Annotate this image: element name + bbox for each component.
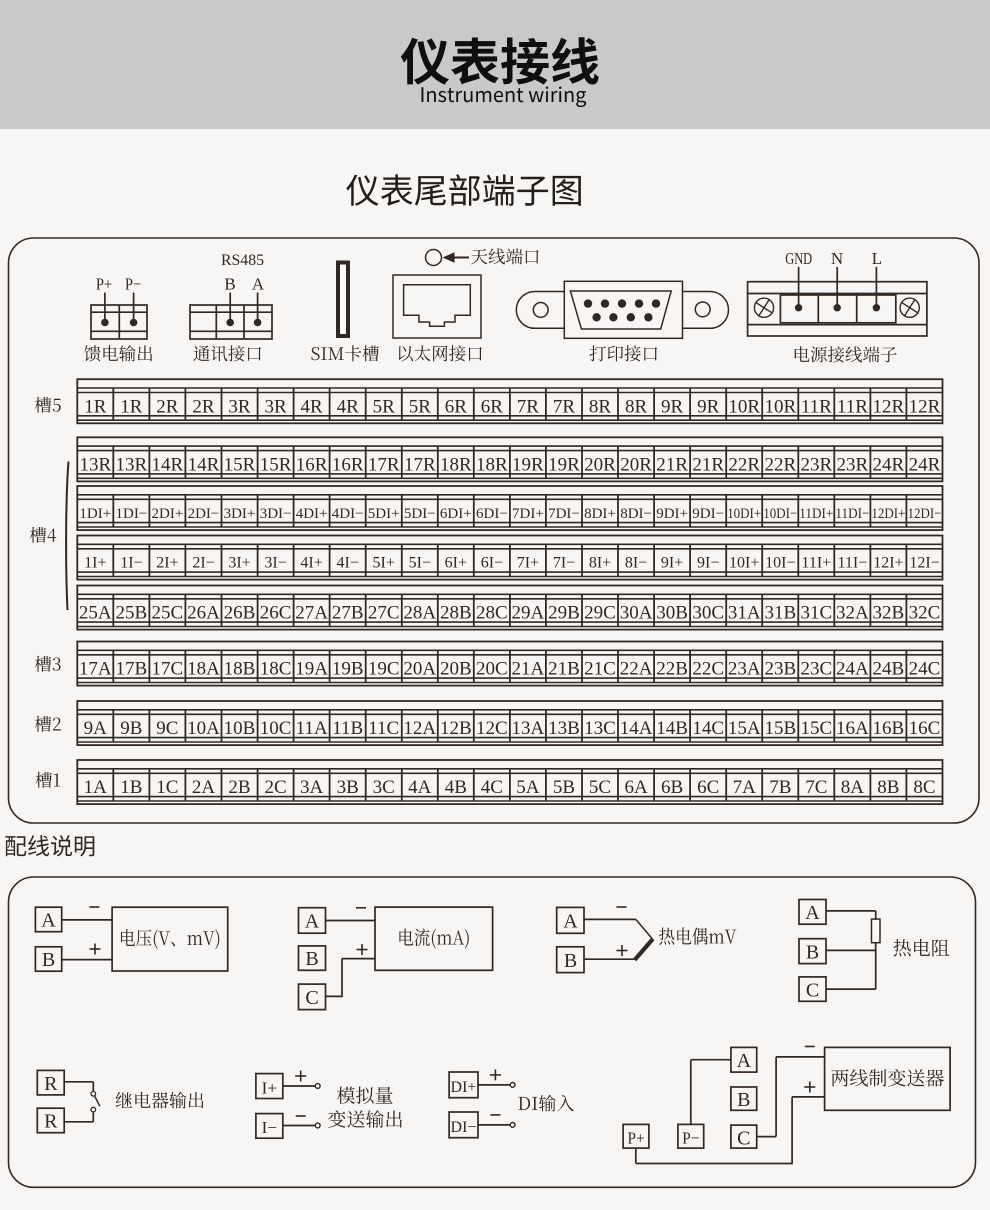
- svg-text:9DI−: 9DI−: [692, 506, 724, 522]
- svg-text:11A: 11A: [296, 718, 328, 739]
- svg-text:9I−: 9I−: [697, 555, 719, 572]
- svg-text:28C: 28C: [476, 603, 508, 624]
- svg-text:2DI−: 2DI−: [188, 506, 220, 522]
- svg-text:9DI+: 9DI+: [656, 506, 688, 522]
- svg-text:2I+: 2I+: [156, 555, 178, 572]
- svg-text:R: R: [44, 1073, 58, 1095]
- svg-text:B: B: [42, 949, 55, 971]
- svg-text:27A: 27A: [295, 603, 328, 624]
- svg-text:14R: 14R: [152, 455, 184, 476]
- svg-text:10B: 10B: [224, 718, 256, 739]
- svg-text:12B: 12B: [440, 718, 472, 739]
- svg-text:RS485: RS485: [221, 252, 264, 269]
- svg-text:4B: 4B: [445, 777, 467, 798]
- svg-text:10I+: 10I+: [729, 555, 759, 572]
- svg-text:32A: 32A: [836, 603, 869, 624]
- svg-text:16R: 16R: [296, 455, 328, 476]
- svg-text:32B: 32B: [873, 603, 905, 624]
- svg-text:5DI+: 5DI+: [368, 506, 400, 522]
- svg-text:11B: 11B: [332, 718, 363, 739]
- svg-text:12R: 12R: [909, 396, 941, 417]
- svg-text:3A: 3A: [300, 777, 324, 798]
- svg-text:8I−: 8I−: [625, 555, 647, 572]
- svg-text:11I−: 11I−: [838, 555, 868, 572]
- svg-text:16C: 16C: [909, 718, 941, 739]
- svg-text:4C: 4C: [481, 777, 503, 798]
- svg-text:DI+: DI+: [451, 1079, 477, 1096]
- svg-text:30A: 30A: [620, 603, 653, 624]
- svg-text:10DI−: 10DI−: [763, 506, 797, 522]
- svg-text:10C: 10C: [260, 718, 292, 739]
- svg-text:12DI+: 12DI+: [871, 506, 905, 522]
- svg-text:N: N: [831, 249, 843, 268]
- svg-text:14C: 14C: [692, 718, 724, 739]
- svg-text:A: A: [41, 910, 56, 932]
- svg-text:14B: 14B: [656, 718, 688, 739]
- svg-text:3I−: 3I−: [264, 555, 286, 572]
- svg-text:19R: 19R: [548, 455, 580, 476]
- svg-text:17A: 17A: [79, 659, 112, 680]
- svg-text:7I−: 7I−: [553, 555, 575, 572]
- svg-text:25B: 25B: [116, 603, 148, 624]
- svg-text:4DI−: 4DI−: [332, 506, 364, 522]
- svg-text:21C: 21C: [584, 659, 616, 680]
- svg-text:20B: 20B: [440, 659, 472, 680]
- svg-text:11I+: 11I+: [801, 555, 831, 572]
- svg-text:5A: 5A: [516, 777, 540, 798]
- svg-text:A: A: [805, 902, 820, 924]
- svg-text:12R: 12R: [873, 396, 905, 417]
- svg-text:3R: 3R: [228, 396, 251, 417]
- svg-text:13R: 13R: [79, 455, 111, 476]
- svg-text:23C: 23C: [800, 659, 832, 680]
- svg-text:3DI+: 3DI+: [224, 506, 256, 522]
- svg-text:17R: 17R: [368, 455, 400, 476]
- svg-text:B: B: [806, 942, 819, 964]
- svg-text:15C: 15C: [800, 718, 832, 739]
- svg-text:24B: 24B: [873, 659, 905, 680]
- svg-text:19C: 19C: [368, 659, 400, 680]
- svg-text:1DI+: 1DI+: [79, 506, 111, 522]
- svg-text:18A: 18A: [187, 659, 220, 680]
- svg-text:5R: 5R: [373, 396, 396, 417]
- svg-text:32C: 32C: [909, 603, 941, 624]
- svg-text:25A: 25A: [79, 603, 112, 624]
- svg-text:1R: 1R: [84, 396, 107, 417]
- svg-text:1B: 1B: [120, 777, 142, 798]
- svg-text:2R: 2R: [192, 396, 215, 417]
- svg-text:8R: 8R: [589, 396, 612, 417]
- svg-text:2B: 2B: [228, 777, 250, 798]
- svg-text:15B: 15B: [764, 718, 796, 739]
- svg-text:30C: 30C: [692, 603, 724, 624]
- svg-text:10A: 10A: [187, 718, 220, 739]
- svg-text:14R: 14R: [188, 455, 220, 476]
- svg-text:L: L: [872, 249, 882, 268]
- svg-text:28B: 28B: [440, 603, 472, 624]
- svg-text:24R: 24R: [909, 455, 941, 476]
- svg-text:22C: 22C: [692, 659, 724, 680]
- svg-text:24A: 24A: [836, 659, 869, 680]
- svg-text:7DI−: 7DI−: [548, 506, 580, 522]
- svg-text:4A: 4A: [408, 777, 432, 798]
- svg-text:12I−: 12I−: [909, 555, 939, 572]
- svg-text:3C: 3C: [373, 777, 395, 798]
- svg-text:12DI−: 12DI−: [908, 506, 942, 522]
- svg-text:I+: I+: [262, 1078, 277, 1097]
- svg-text:2DI+: 2DI+: [152, 506, 184, 522]
- svg-text:6I−: 6I−: [481, 555, 503, 572]
- svg-text:C: C: [806, 980, 819, 1002]
- svg-text:A: A: [563, 911, 578, 933]
- svg-text:6DI+: 6DI+: [440, 506, 472, 522]
- svg-text:3B: 3B: [337, 777, 359, 798]
- svg-text:26A: 26A: [187, 603, 220, 624]
- svg-text:A: A: [305, 911, 320, 933]
- svg-text:1I−: 1I−: [120, 555, 142, 572]
- svg-text:A: A: [252, 275, 265, 294]
- svg-text:C: C: [737, 1128, 750, 1150]
- svg-text:11C: 11C: [368, 718, 399, 739]
- svg-text:P+: P+: [628, 1129, 645, 1148]
- svg-text:1DI−: 1DI−: [116, 506, 148, 522]
- svg-text:9A: 9A: [84, 718, 108, 739]
- svg-text:31A: 31A: [728, 603, 761, 624]
- svg-text:21R: 21R: [656, 455, 688, 476]
- svg-text:23A: 23A: [728, 659, 761, 680]
- svg-text:13B: 13B: [548, 718, 580, 739]
- svg-text:8DI+: 8DI+: [584, 506, 616, 522]
- svg-text:8C: 8C: [913, 777, 935, 798]
- svg-text:8I+: 8I+: [589, 555, 611, 572]
- svg-text:27B: 27B: [332, 603, 364, 624]
- svg-text:19R: 19R: [512, 455, 544, 476]
- svg-text:6DI−: 6DI−: [476, 506, 508, 522]
- svg-text:13C: 13C: [584, 718, 616, 739]
- svg-text:2I−: 2I−: [192, 555, 214, 572]
- svg-text:8A: 8A: [841, 777, 865, 798]
- svg-text:18B: 18B: [224, 659, 256, 680]
- svg-text:24C: 24C: [909, 659, 941, 680]
- svg-text:8DI−: 8DI−: [620, 506, 652, 522]
- svg-text:DI−: DI−: [451, 1119, 477, 1136]
- svg-text:5DI−: 5DI−: [404, 506, 436, 522]
- svg-text:22R: 22R: [764, 455, 796, 476]
- svg-text:8R: 8R: [625, 396, 648, 417]
- svg-text:17C: 17C: [152, 659, 184, 680]
- svg-text:22R: 22R: [728, 455, 760, 476]
- svg-text:3DI−: 3DI−: [260, 506, 292, 522]
- svg-text:4DI+: 4DI+: [296, 506, 328, 522]
- svg-text:16B: 16B: [873, 718, 905, 739]
- svg-text:21R: 21R: [692, 455, 724, 476]
- svg-text:25C: 25C: [152, 603, 184, 624]
- svg-text:16A: 16A: [836, 718, 869, 739]
- svg-text:4R: 4R: [301, 396, 324, 417]
- svg-text:2C: 2C: [265, 777, 287, 798]
- svg-text:10R: 10R: [728, 396, 760, 417]
- svg-text:9B: 9B: [120, 718, 142, 739]
- svg-text:11DI+: 11DI+: [799, 506, 833, 522]
- svg-text:5I+: 5I+: [373, 555, 395, 572]
- svg-text:P+: P+: [96, 275, 112, 294]
- svg-text:12I+: 12I+: [873, 555, 903, 572]
- svg-text:R: R: [44, 1111, 58, 1133]
- svg-text:GND: GND: [785, 249, 812, 268]
- svg-text:9R: 9R: [661, 396, 684, 417]
- svg-text:7R: 7R: [517, 396, 540, 417]
- svg-text:29C: 29C: [584, 603, 616, 624]
- svg-text:7R: 7R: [553, 396, 576, 417]
- svg-text:29A: 29A: [512, 603, 545, 624]
- svg-text:23R: 23R: [837, 455, 869, 476]
- svg-text:9R: 9R: [697, 396, 720, 417]
- svg-text:1R: 1R: [120, 396, 143, 417]
- svg-text:8B: 8B: [877, 777, 899, 798]
- svg-text:18R: 18R: [440, 455, 472, 476]
- svg-text:18R: 18R: [476, 455, 508, 476]
- svg-text:2A: 2A: [192, 777, 216, 798]
- svg-text:10R: 10R: [764, 396, 796, 417]
- svg-text:10I−: 10I−: [765, 555, 795, 572]
- svg-text:23R: 23R: [800, 455, 832, 476]
- svg-text:13A: 13A: [512, 718, 545, 739]
- svg-text:5C: 5C: [589, 777, 611, 798]
- svg-text:12A: 12A: [403, 718, 436, 739]
- svg-text:B: B: [224, 275, 235, 294]
- svg-text:19A: 19A: [295, 659, 328, 680]
- svg-text:4I+: 4I+: [300, 555, 322, 572]
- svg-text:6C: 6C: [697, 777, 719, 798]
- svg-text:P−: P−: [682, 1129, 699, 1148]
- svg-text:5I−: 5I−: [409, 555, 431, 572]
- svg-text:B: B: [305, 948, 318, 970]
- svg-text:P−: P−: [125, 275, 141, 294]
- svg-text:20C: 20C: [476, 659, 508, 680]
- svg-text:6B: 6B: [661, 777, 683, 798]
- svg-text:20R: 20R: [620, 455, 652, 476]
- svg-text:9C: 9C: [156, 718, 178, 739]
- svg-text:31C: 31C: [800, 603, 832, 624]
- svg-text:11DI−: 11DI−: [835, 506, 869, 522]
- svg-text:4R: 4R: [337, 396, 360, 417]
- svg-text:12C: 12C: [476, 718, 508, 739]
- svg-text:22B: 22B: [656, 659, 688, 680]
- svg-text:31B: 31B: [764, 603, 796, 624]
- svg-text:7I+: 7I+: [517, 555, 539, 572]
- svg-text:7DI+: 7DI+: [512, 506, 544, 522]
- svg-text:1I+: 1I+: [84, 555, 106, 572]
- svg-text:26C: 26C: [260, 603, 292, 624]
- svg-text:18C: 18C: [260, 659, 292, 680]
- svg-text:24R: 24R: [873, 455, 905, 476]
- svg-text:22A: 22A: [620, 659, 653, 680]
- svg-text:15A: 15A: [728, 718, 761, 739]
- svg-text:B: B: [737, 1089, 750, 1111]
- svg-text:6I+: 6I+: [445, 555, 467, 572]
- svg-text:C: C: [305, 987, 318, 1009]
- svg-text:3R: 3R: [265, 396, 288, 417]
- svg-text:2R: 2R: [156, 396, 179, 417]
- svg-text:6A: 6A: [624, 777, 648, 798]
- svg-text:1C: 1C: [156, 777, 178, 798]
- svg-text:23B: 23B: [764, 659, 796, 680]
- svg-text:15R: 15R: [224, 455, 256, 476]
- svg-text:19B: 19B: [332, 659, 364, 680]
- svg-text:3I+: 3I+: [228, 555, 250, 572]
- svg-text:20A: 20A: [403, 659, 436, 680]
- svg-text:17B: 17B: [116, 659, 148, 680]
- svg-text:16R: 16R: [332, 455, 364, 476]
- svg-text:A: A: [737, 1050, 752, 1072]
- svg-text:6R: 6R: [445, 396, 468, 417]
- svg-text:11R: 11R: [837, 396, 868, 417]
- svg-text:10DI+: 10DI+: [727, 506, 761, 522]
- svg-text:I−: I−: [262, 1118, 277, 1137]
- svg-text:26B: 26B: [224, 603, 256, 624]
- svg-text:30B: 30B: [656, 603, 688, 624]
- svg-text:21B: 21B: [548, 659, 580, 680]
- svg-text:20R: 20R: [584, 455, 616, 476]
- svg-text:15R: 15R: [260, 455, 292, 476]
- svg-text:6R: 6R: [481, 396, 504, 417]
- svg-text:7C: 7C: [805, 777, 827, 798]
- svg-text:7A: 7A: [733, 777, 757, 798]
- svg-text:13R: 13R: [116, 455, 148, 476]
- svg-text:9I+: 9I+: [661, 555, 683, 572]
- svg-text:11R: 11R: [801, 396, 832, 417]
- svg-text:21A: 21A: [512, 659, 545, 680]
- svg-text:5R: 5R: [409, 396, 432, 417]
- svg-text:7B: 7B: [769, 777, 791, 798]
- svg-text:1A: 1A: [84, 777, 108, 798]
- svg-text:29B: 29B: [548, 603, 580, 624]
- svg-text:5B: 5B: [553, 777, 575, 798]
- svg-text:28A: 28A: [403, 603, 436, 624]
- svg-text:4I−: 4I−: [337, 555, 359, 572]
- svg-text:27C: 27C: [368, 603, 400, 624]
- svg-text:17R: 17R: [404, 455, 436, 476]
- svg-text:14A: 14A: [620, 718, 653, 739]
- svg-text:B: B: [564, 950, 577, 972]
